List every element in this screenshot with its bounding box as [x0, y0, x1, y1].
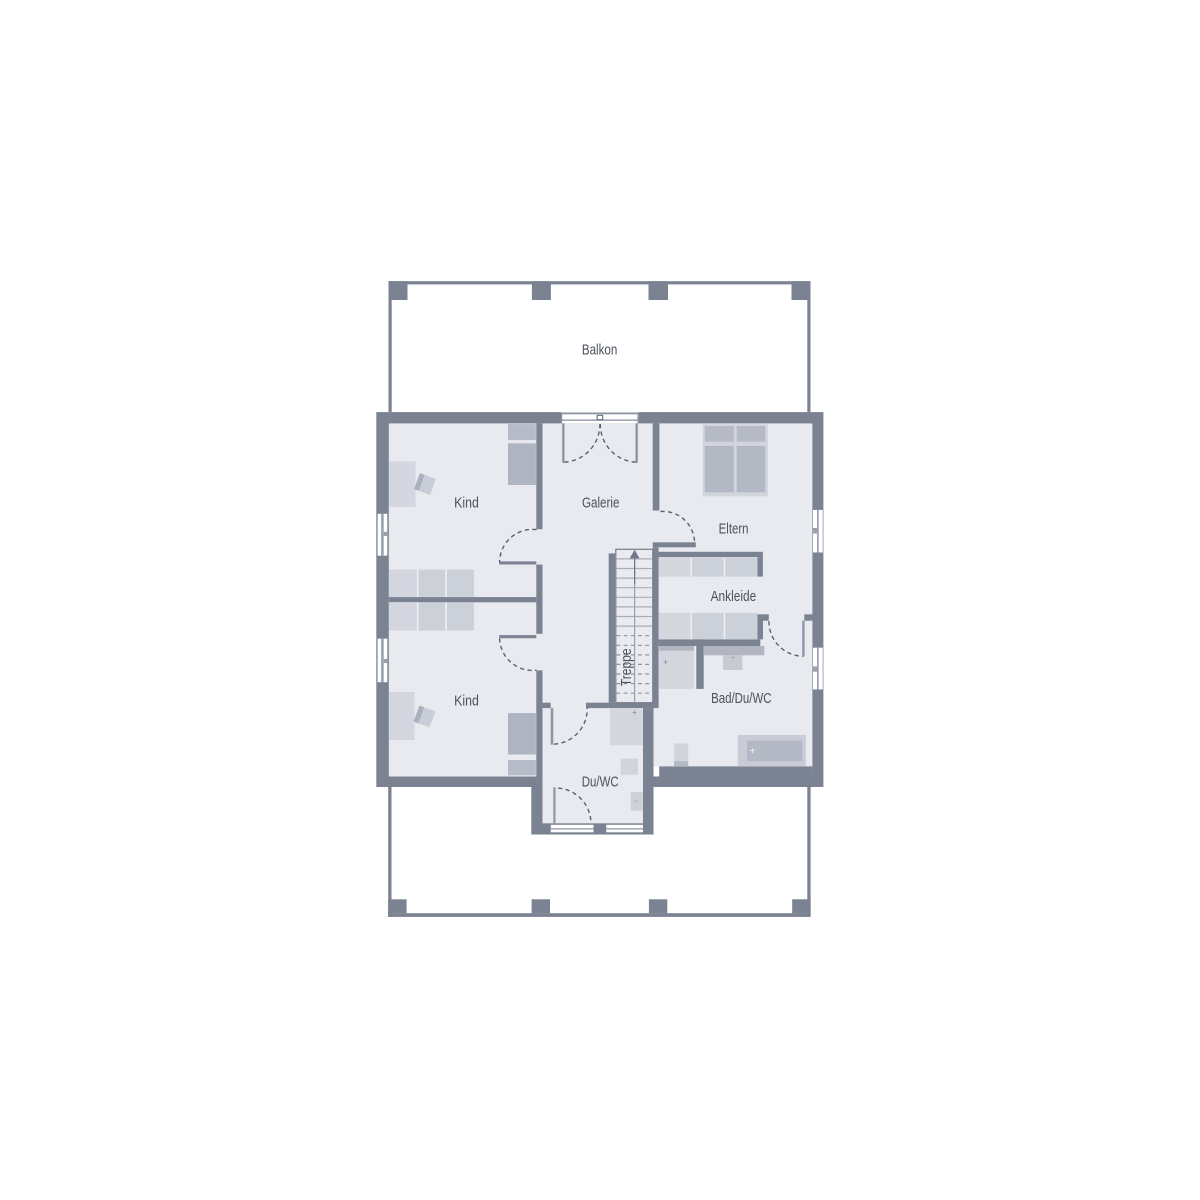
svg-text:Kind: Kind: [454, 494, 479, 510]
svg-text:Balkon: Balkon: [582, 341, 617, 358]
svg-text:Ankleide: Ankleide: [711, 588, 757, 604]
svg-text:Treppe: Treppe: [618, 648, 634, 686]
svg-text:Du/WC: Du/WC: [582, 773, 619, 790]
svg-text:Eltern: Eltern: [719, 520, 749, 537]
svg-text:Galerie: Galerie: [582, 494, 619, 511]
svg-text:Bad/Du/WC: Bad/Du/WC: [711, 690, 771, 707]
svg-text:Kind: Kind: [454, 692, 479, 708]
